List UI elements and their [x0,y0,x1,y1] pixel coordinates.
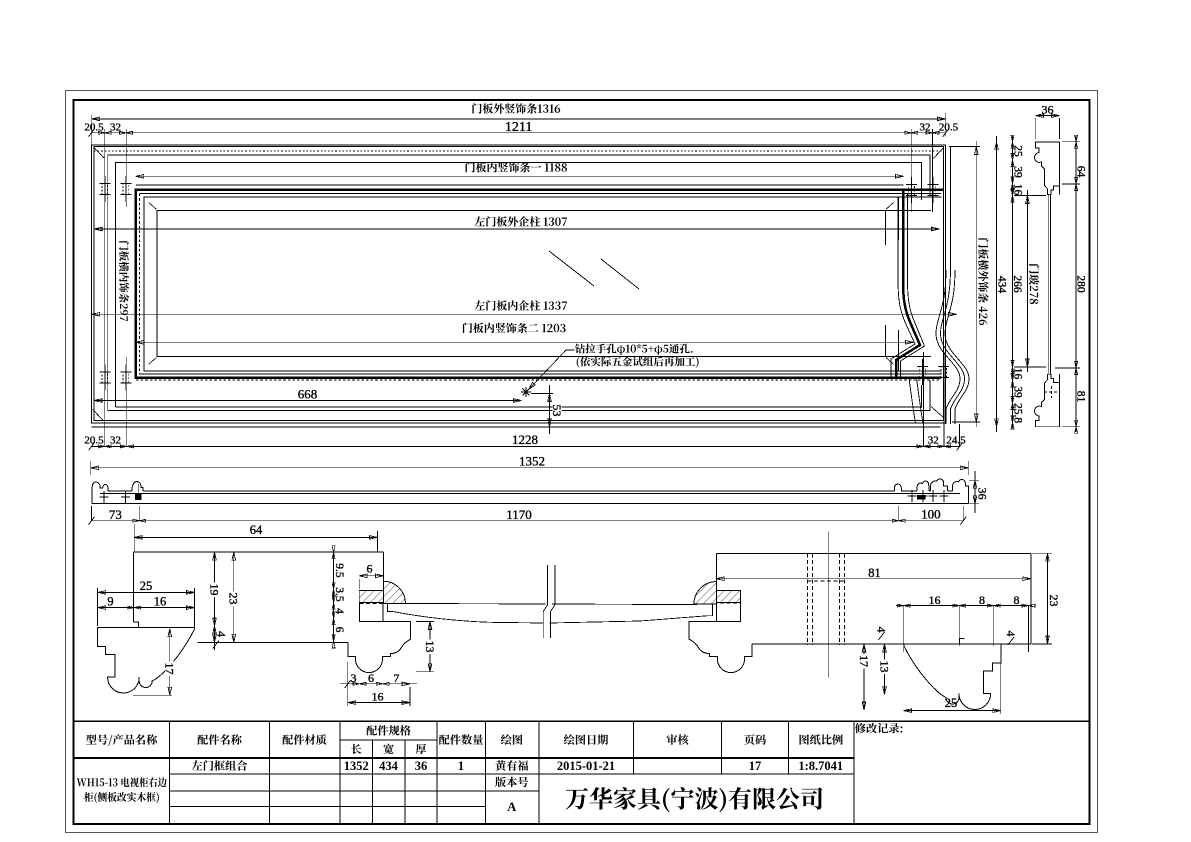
svg-text:1228: 1228 [512,432,538,447]
svg-text:1211: 1211 [505,120,532,135]
svg-text:81: 81 [1075,391,1087,403]
svg-text:3.5: 3.5 [333,587,345,602]
svg-text:4: 4 [215,631,229,637]
svg-text:1352: 1352 [344,759,369,773]
svg-text:23: 23 [227,593,241,605]
svg-text:1170: 1170 [506,507,532,522]
svg-text:280: 280 [1075,275,1087,293]
svg-text:20.5: 20.5 [84,435,104,447]
svg-text:16: 16 [1012,368,1024,380]
svg-text:53: 53 [550,405,564,417]
svg-text:17: 17 [857,655,871,667]
svg-text:36: 36 [1042,102,1054,116]
svg-text:16: 16 [929,593,941,607]
svg-text:A: A [507,800,516,814]
svg-text:32: 32 [928,435,939,447]
svg-text:16: 16 [1012,184,1024,196]
svg-text:2015-01-21: 2015-01-21 [557,759,615,773]
svg-text:9: 9 [107,595,113,609]
svg-text:1:8.7041: 1:8.7041 [798,759,843,773]
svg-text:25: 25 [140,579,153,593]
svg-text:24.5: 24.5 [946,435,966,447]
svg-text:32: 32 [110,121,121,133]
svg-text:64: 64 [1075,166,1087,178]
svg-text:7: 7 [393,671,399,685]
svg-text:39: 39 [1012,386,1024,398]
svg-text:25: 25 [945,696,958,710]
svg-text:36: 36 [975,488,989,500]
svg-text:1352: 1352 [519,453,545,468]
svg-text:81: 81 [868,566,881,580]
svg-text:23: 23 [1047,595,1061,607]
svg-text:39: 39 [1012,166,1024,178]
svg-text:20.5: 20.5 [939,121,959,133]
svg-text:8: 8 [1014,593,1020,607]
svg-text:32: 32 [920,121,931,133]
svg-text:4: 4 [1004,631,1016,637]
svg-text:13: 13 [423,641,437,653]
svg-text:73: 73 [109,507,122,522]
svg-text:8: 8 [979,593,985,607]
svg-text:266: 266 [1011,275,1023,293]
svg-text:6: 6 [367,561,373,575]
svg-text:25.8: 25.8 [1012,403,1024,423]
svg-text:20.5: 20.5 [84,121,104,133]
svg-text:32: 32 [110,435,121,447]
svg-text:434: 434 [995,276,1007,294]
svg-text:668: 668 [298,386,318,401]
svg-text:3: 3 [351,671,357,685]
svg-text:36: 36 [415,759,428,773]
svg-text:13: 13 [877,661,891,673]
svg-text:1: 1 [458,759,464,773]
svg-text:6: 6 [368,671,374,685]
svg-text:16: 16 [154,595,167,609]
svg-text:19: 19 [207,584,221,596]
svg-text:17: 17 [749,759,762,773]
svg-text:434: 434 [379,759,399,773]
svg-text:6: 6 [333,627,345,633]
svg-text:25: 25 [1012,145,1024,157]
svg-text:9.5: 9.5 [333,563,345,578]
svg-text:17: 17 [163,663,177,675]
svg-text:64: 64 [250,523,263,537]
svg-text:4: 4 [333,608,345,614]
svg-text:4: 4 [875,627,887,633]
svg-text:100: 100 [921,507,941,522]
svg-text:16: 16 [372,689,384,703]
